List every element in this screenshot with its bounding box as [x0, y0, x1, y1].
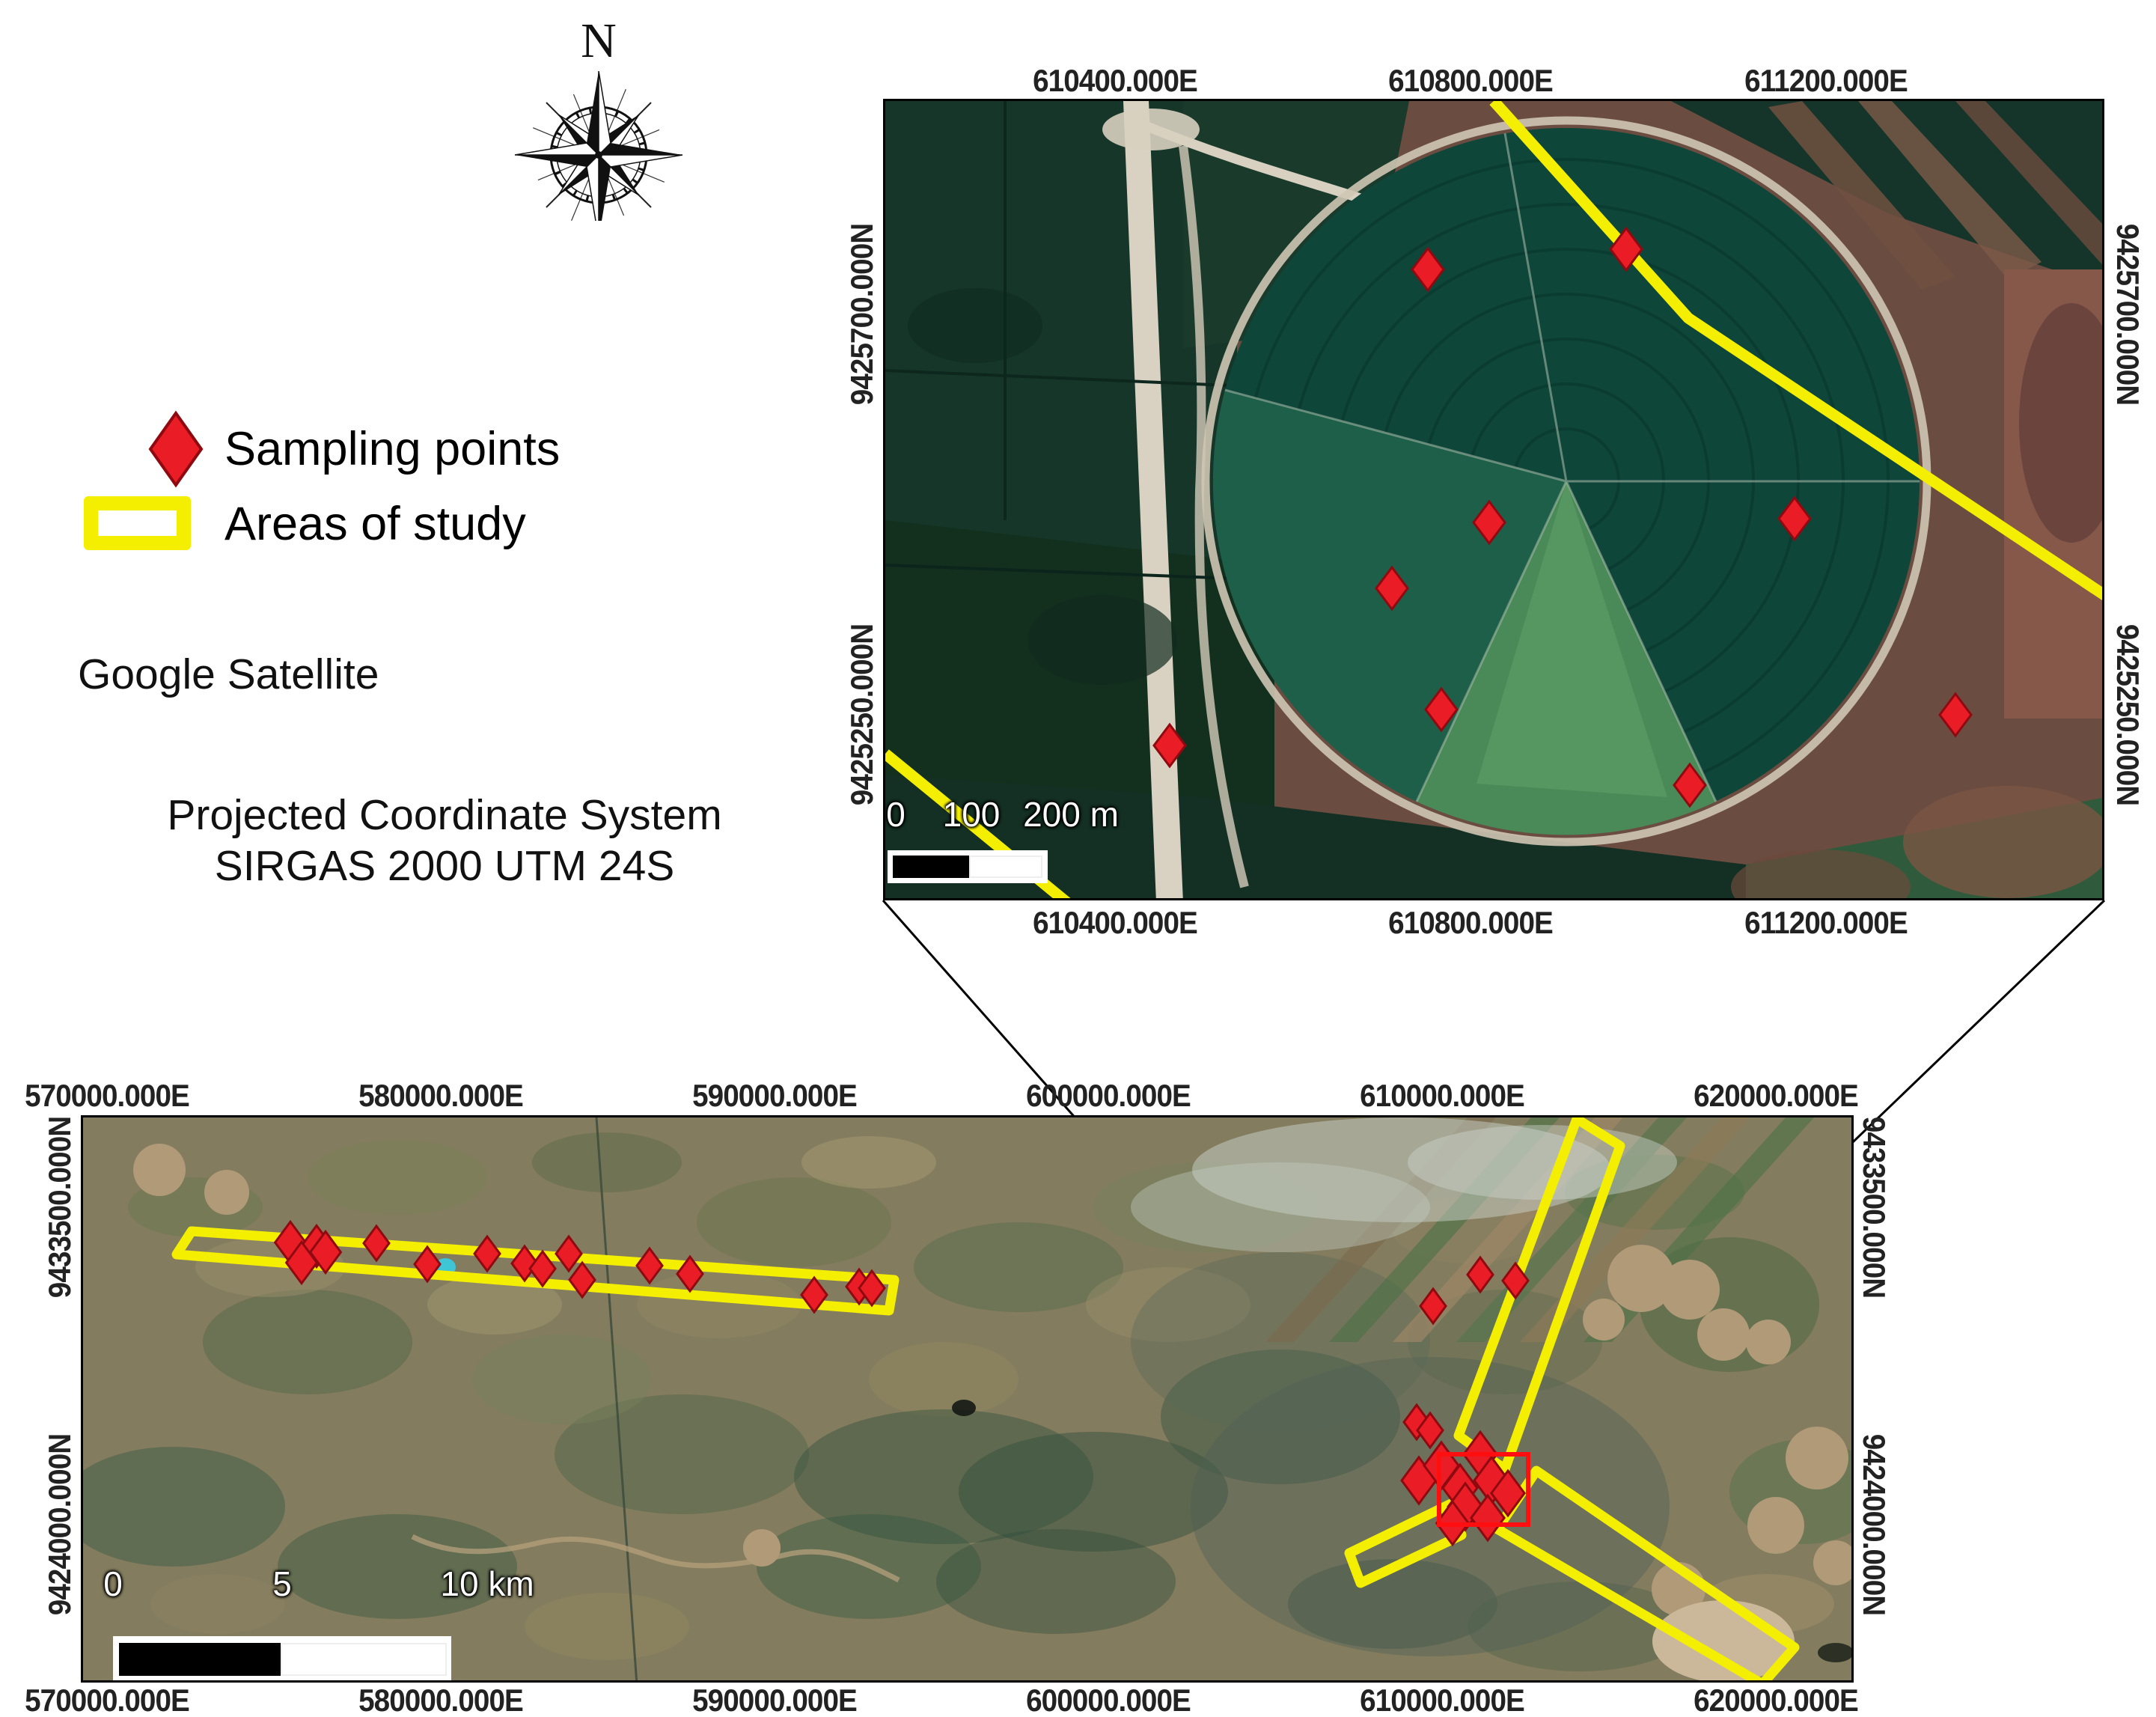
coordinate-label: 620000.000E [1694, 1683, 1858, 1717]
coordinate-label: 600000.000E [1026, 1683, 1191, 1717]
coordinate-label: 590000.000E [692, 1683, 857, 1717]
coordinate-label: 590000.000E [692, 1078, 857, 1114]
coordinate-label: 9425250.000N [844, 624, 880, 806]
sampling-point-marker [637, 1248, 662, 1283]
sampling-point-marker [1420, 1289, 1446, 1323]
crs-title: Projected Coordinate System [167, 790, 721, 840]
legend-label-areas-of-study: Areas of study [225, 497, 526, 551]
sampling-point-marker [1940, 694, 1971, 736]
coordinate-label: 9433500.000N [1856, 1117, 1892, 1299]
coordinate-label: 9425250.000N [2110, 624, 2146, 806]
sampling-point-marker [1474, 501, 1505, 543]
sampling-point-marker [474, 1236, 500, 1271]
figure-canvas: N [0, 0, 2156, 1717]
sampling-point-icon [142, 410, 210, 488]
coordinate-label: 610800.000E [1388, 905, 1553, 941]
scalebar-label: 200 m [1023, 794, 1119, 835]
coordinate-label: 9425700.000N [844, 224, 880, 406]
compass-rose-icon [479, 71, 718, 221]
study-area-icon [84, 496, 191, 550]
overview-map-overlay [83, 1117, 1854, 1683]
coordinate-label: 9424000.000N [1856, 1434, 1892, 1616]
study-area-outline [1497, 1471, 1795, 1683]
sampling-point-marker [1376, 567, 1408, 609]
coordinate-label: 9425700.000N [2110, 224, 2146, 406]
legend-label-sampling-points: Sampling points [225, 422, 560, 476]
coordinate-label: 620000.000E [1694, 1078, 1858, 1114]
inset-map: 0100200 m [883, 99, 2104, 900]
coordinate-label: 610800.000E [1388, 63, 1553, 99]
sampling-point-marker [1468, 1257, 1493, 1292]
overview-map: 0510 km [81, 1115, 1854, 1683]
inset-map-overlay [885, 101, 2104, 900]
scalebar-segment [969, 856, 1042, 878]
sampling-point-marker [1154, 725, 1185, 766]
study-area-outline [1459, 1119, 1620, 1469]
coordinate-label: 611200.000E [1744, 63, 1908, 99]
scalebar-label: 100 [943, 794, 1001, 835]
basemap-credit: Google Satellite [78, 650, 379, 699]
coordinate-label: 610400.000E [1033, 905, 1197, 941]
scalebar-label: 5 [272, 1564, 292, 1604]
crs-subtitle: SIRGAS 2000 UTM 24S [215, 841, 675, 891]
coordinate-label: 9424000.000N [42, 1434, 78, 1616]
coordinate-label: 610400.000E [1033, 63, 1197, 99]
inset-extent-highlight [1437, 1452, 1530, 1527]
scalebar-segment [281, 1643, 447, 1676]
sampling-point-marker [364, 1226, 389, 1260]
coordinate-label: 580000.000E [358, 1078, 523, 1114]
scalebar-label: 10 km [440, 1564, 534, 1604]
sampling-point-marker [1674, 764, 1705, 806]
coordinate-label: 580000.000E [358, 1683, 523, 1717]
scalebar-segment [893, 856, 969, 878]
coordinate-label: 570000.000E [25, 1683, 189, 1717]
coordinate-label: 610000.000E [1360, 1078, 1524, 1114]
scalebar-segment [119, 1643, 281, 1676]
coordinate-label: 610000.000E [1360, 1683, 1524, 1717]
coordinate-label: 570000.000E [25, 1078, 189, 1114]
coordinate-label: 611200.000E [1744, 905, 1908, 941]
coordinate-label: 9433500.000N [42, 1117, 78, 1299]
sampling-point-marker [1426, 689, 1457, 731]
sampling-point-marker [1779, 498, 1810, 540]
scalebar-label: 0 [103, 1564, 123, 1604]
north-label: N [581, 13, 617, 70]
sampling-point-marker [556, 1236, 581, 1271]
coordinate-label: 600000.000E [1026, 1078, 1191, 1114]
sampling-point-marker [1412, 248, 1444, 290]
scalebar-label: 0 [886, 794, 906, 835]
